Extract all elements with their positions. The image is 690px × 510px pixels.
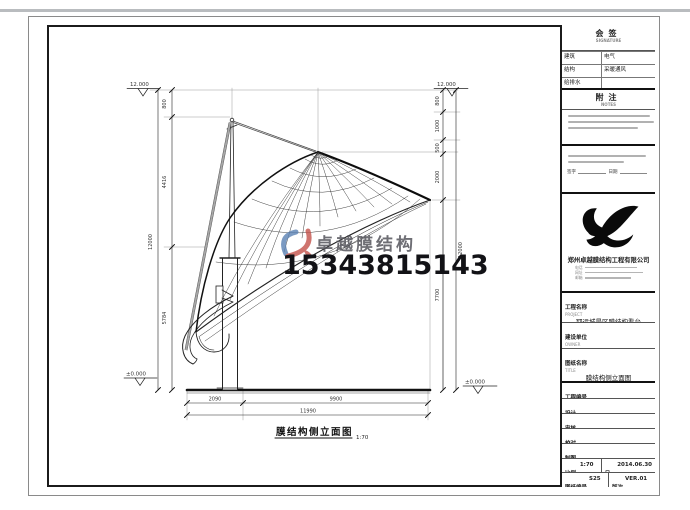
dwgno-cell: 图纸编号 DWG No. S25 xyxy=(562,473,608,487)
countersign-cell-plumbing: 给排水 xyxy=(562,77,601,90)
elevation-ground-left: ±0.000 xyxy=(126,372,147,378)
statement-line xyxy=(568,155,646,157)
dimension-chain-left xyxy=(156,88,175,393)
contact-label-web: 网址 xyxy=(575,271,583,275)
sign-blank xyxy=(578,169,606,174)
elevation-ground-right: ±0.000 xyxy=(465,380,486,386)
sign-date-row: 签字 日期 xyxy=(565,169,652,175)
note-line xyxy=(568,127,638,129)
company-name: 郑州卓越膜结构工程有限公司 xyxy=(565,255,652,264)
field-owner-sublabel: OWNER xyxy=(565,343,652,347)
dim-right-seg0: 800 xyxy=(435,96,441,106)
countersign-sublabel: SIGNATURE xyxy=(565,39,652,43)
date-label: 日期 xyxy=(609,169,618,175)
drawing-title-scale: 1:70 xyxy=(356,435,369,441)
notes-box xyxy=(562,110,655,146)
drawing-title: 膜结构侧立面图 xyxy=(275,426,353,438)
company-box: 郑州卓越膜结构工程有限公司 电话 网址 邮箱 xyxy=(562,194,655,293)
field-checked: 审核 CHECKED xyxy=(562,414,655,429)
notes-sublabel: NOTES xyxy=(565,103,652,107)
field-project-sublabel: PROJECT xyxy=(565,313,652,317)
countersign-cell-architecture: 建筑 xyxy=(562,51,601,64)
notes-label: 附注 xyxy=(596,93,622,102)
field-drawn: 制图 DRAWN xyxy=(562,444,655,459)
version-label: 版次 xyxy=(612,485,623,487)
dim-right-seg4: 7700 xyxy=(435,289,441,302)
field-proofread: 校对 PROOFREAD xyxy=(562,429,655,444)
contact-bar xyxy=(585,277,631,279)
countersign-header: 会签 SIGNATURE xyxy=(562,25,655,51)
dim-left-seg2: 5784 xyxy=(162,312,168,325)
notes-header: 附注 NOTES xyxy=(562,90,655,110)
watermark-phone: 15343815143 xyxy=(282,250,489,281)
field-project-label: 工程名称 xyxy=(565,305,587,311)
note-line xyxy=(568,121,654,123)
company-contact-mail: 邮箱 xyxy=(575,276,646,280)
date-value: 2014.06.30 xyxy=(617,462,652,468)
statement-box: 签字 日期 xyxy=(562,146,655,194)
dim-left-outer: 12000 xyxy=(148,234,154,250)
dim-bottom-seg1: 9900 xyxy=(330,397,343,403)
elevation-top-left: 12.000 xyxy=(130,82,149,88)
version-cell: 版次 VER. VER.01 xyxy=(608,473,655,487)
dim-bottom-seg0: 2090 xyxy=(209,397,222,403)
dwgno-label: 图纸编号 xyxy=(565,485,587,487)
countersign-grid: 建筑 电气 结构 采暖通风 给排水 xyxy=(562,51,655,90)
field-designed: 设计 DESIGNED xyxy=(562,399,655,414)
countersign-cell-structure: 结构 xyxy=(562,64,601,77)
field-contract: 工程编号 CONTRACT No. xyxy=(562,383,655,399)
dim-right-seg1: 1000 xyxy=(435,120,441,133)
countersign-cell-hvac: 采暖通风 xyxy=(601,64,655,77)
countersign-cell-empty xyxy=(601,77,655,90)
company-logo-icon xyxy=(576,198,642,250)
row-dwgno-version: 图纸编号 DWG No. S25 版次 VER. VER.01 xyxy=(562,473,655,487)
field-title-label: 图纸名称 xyxy=(565,361,587,367)
watermark: 卓越膜结构 15343815143 xyxy=(250,224,465,280)
company-contact-phone: 电话 xyxy=(575,266,646,270)
elevation-top-right: 12.000 xyxy=(437,82,456,88)
dim-right-seg3: 2000 xyxy=(435,171,441,184)
drawing-sheet: 12.000 12.000 ±0.000 ±0.000 12000 800 44… xyxy=(0,0,690,510)
countersign-cell-electrical: 电气 xyxy=(601,51,655,64)
field-owner: 建设单位 OWNER xyxy=(562,323,655,349)
version-value: VER.01 xyxy=(625,476,647,482)
title-block: 会签 SIGNATURE 建筑 电气 结构 采暖通风 给排水 附注 NOTES … xyxy=(560,25,655,487)
sign-label: 签字 xyxy=(567,169,576,175)
dim-bottom-total: 11990 xyxy=(300,409,316,415)
row-scale-date: 比例 SCALE 1:70 日期 DATE 2014.06.30 xyxy=(562,459,655,473)
field-title-sublabel: TITLE xyxy=(565,369,652,373)
countersign-label: 会签 xyxy=(596,29,622,38)
field-title-value: 膜结构侧立面图 xyxy=(565,375,652,383)
scale-value: 1:70 xyxy=(580,462,594,468)
dim-right-seg2: 500 xyxy=(435,143,441,153)
date-blank xyxy=(620,169,648,174)
statement-line xyxy=(568,161,624,163)
contact-bar xyxy=(585,272,643,274)
mast xyxy=(227,118,237,258)
field-title: 图纸名称 TITLE 膜结构侧立面图 xyxy=(562,349,655,383)
note-line xyxy=(568,115,650,117)
date-cell: 日期 DATE 2014.06.30 xyxy=(601,459,655,472)
company-contact-web: 网址 xyxy=(575,271,646,275)
contact-label-mail: 邮箱 xyxy=(575,276,583,280)
dim-left-seg0: 800 xyxy=(162,99,168,109)
contact-bar xyxy=(585,267,637,269)
dim-left-seg1: 4416 xyxy=(162,176,168,189)
dwgno-value: S25 xyxy=(589,476,601,482)
field-owner-label: 建设单位 xyxy=(565,335,587,341)
contact-label-phone: 电话 xyxy=(575,266,583,270)
scale-cell: 比例 SCALE 1:70 xyxy=(562,459,601,472)
field-project: 工程名称 PROJECT 郓运城景区膜结构看台 xyxy=(562,293,655,323)
